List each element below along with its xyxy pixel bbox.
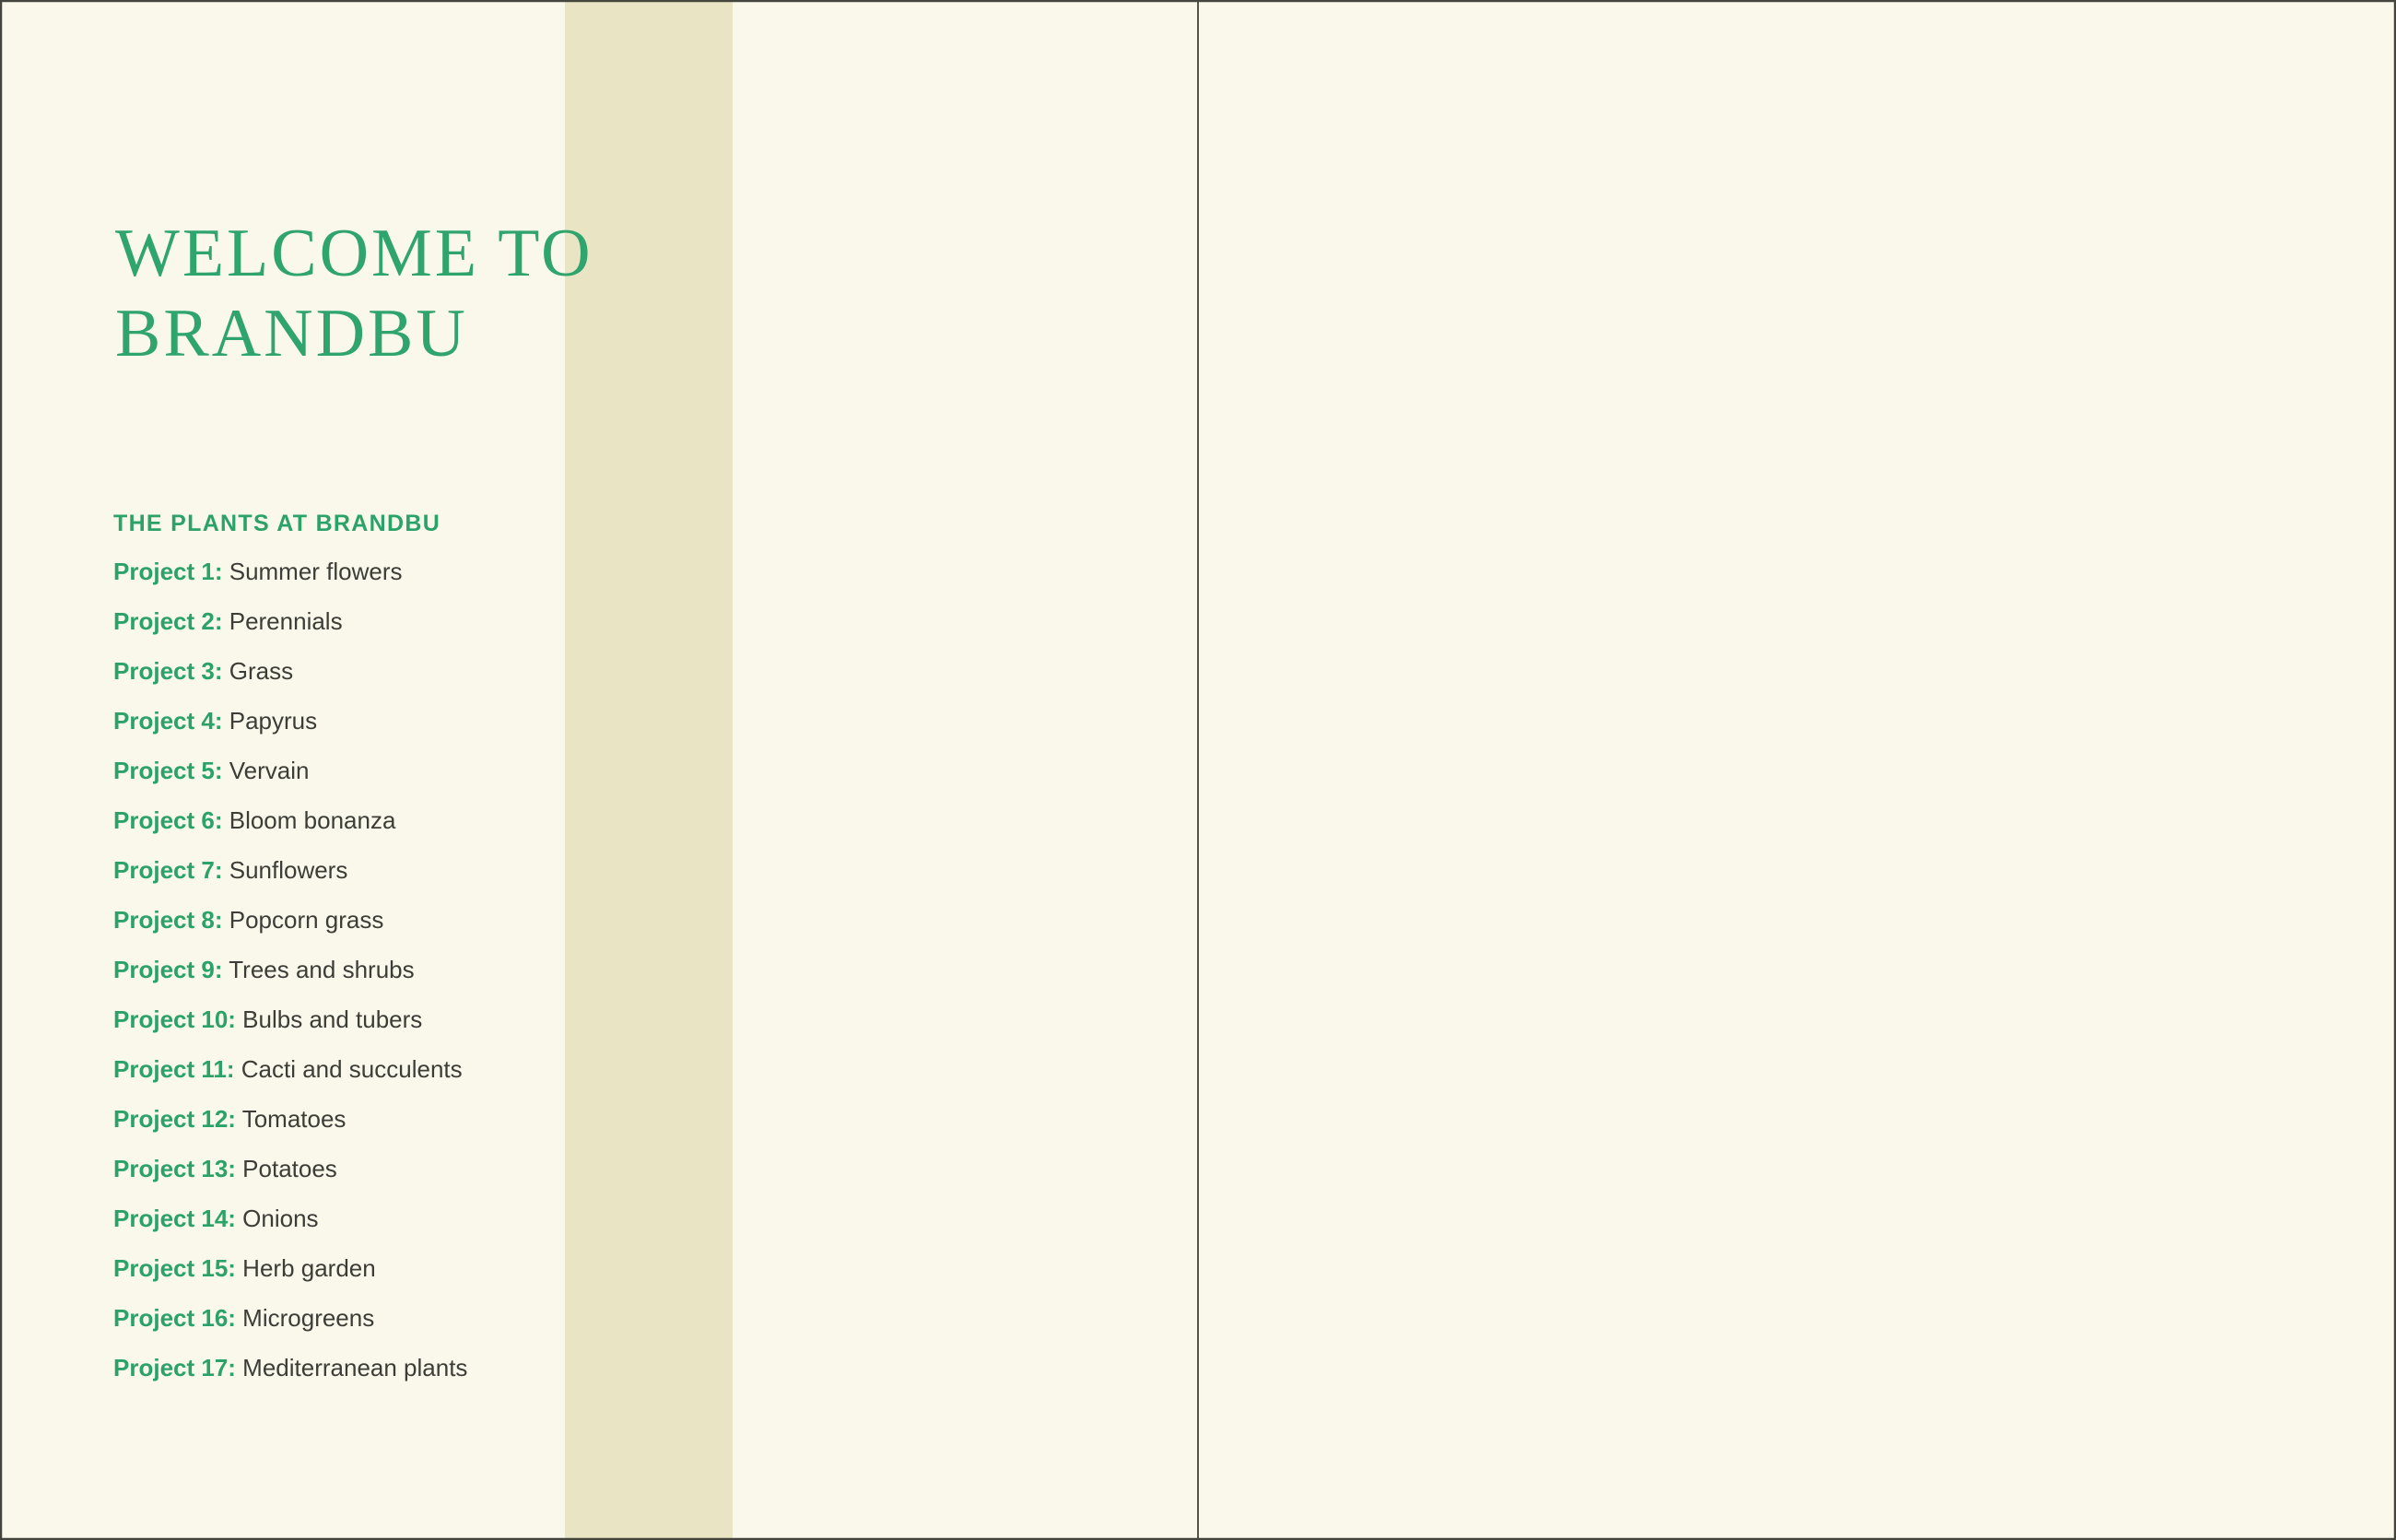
svg-text:Project 3: Grass: Project 3: Grass: [113, 657, 293, 685]
svg-text:Project 1: Summer flowers: Project 1: Summer flowers: [113, 558, 403, 585]
svg-text:Project 12: Tomatoes: Project 12: Tomatoes: [113, 1105, 346, 1133]
svg-text:Project 9: Trees and shrubs: Project 9: Trees and shrubs: [113, 956, 415, 983]
svg-text:Project 16: Microgreens: Project 16: Microgreens: [113, 1304, 374, 1332]
svg-text:THE PLANTS AT BRANDBU: THE PLANTS AT BRANDBU: [113, 511, 440, 536]
svg-text:Project 8: Popcorn grass: Project 8: Popcorn grass: [113, 906, 383, 934]
svg-text:Project 4: Papyrus: Project 4: Papyrus: [113, 707, 317, 735]
svg-text:Project 2: Perennials: Project 2: Perennials: [113, 607, 343, 635]
svg-text:Project 5: Vervain: Project 5: Vervain: [113, 757, 309, 784]
svg-text:Project 14: Onions: Project 14: Onions: [113, 1205, 319, 1232]
svg-text:Project 6: Bloom bonanza: Project 6: Bloom bonanza: [113, 806, 396, 834]
svg-text:Project 17: Mediterranean plan: Project 17: Mediterranean plants: [113, 1354, 467, 1381]
svg-text:Project 15: Herb garden: Project 15: Herb garden: [113, 1254, 376, 1282]
svg-text:Project 7: Sunflowers: Project 7: Sunflowers: [113, 856, 347, 884]
svg-text:WELCOME TO: WELCOME TO: [115, 216, 593, 291]
svg-text:Project 10: Bulbs and tubers: Project 10: Bulbs and tubers: [113, 1005, 422, 1033]
svg-text:Project 13: Potatoes: Project 13: Potatoes: [113, 1155, 337, 1182]
svg-text:BRANDBU: BRANDBU: [115, 296, 468, 371]
svg-text:Project 11: Cacti and succulen: Project 11: Cacti and succulents: [113, 1055, 463, 1083]
